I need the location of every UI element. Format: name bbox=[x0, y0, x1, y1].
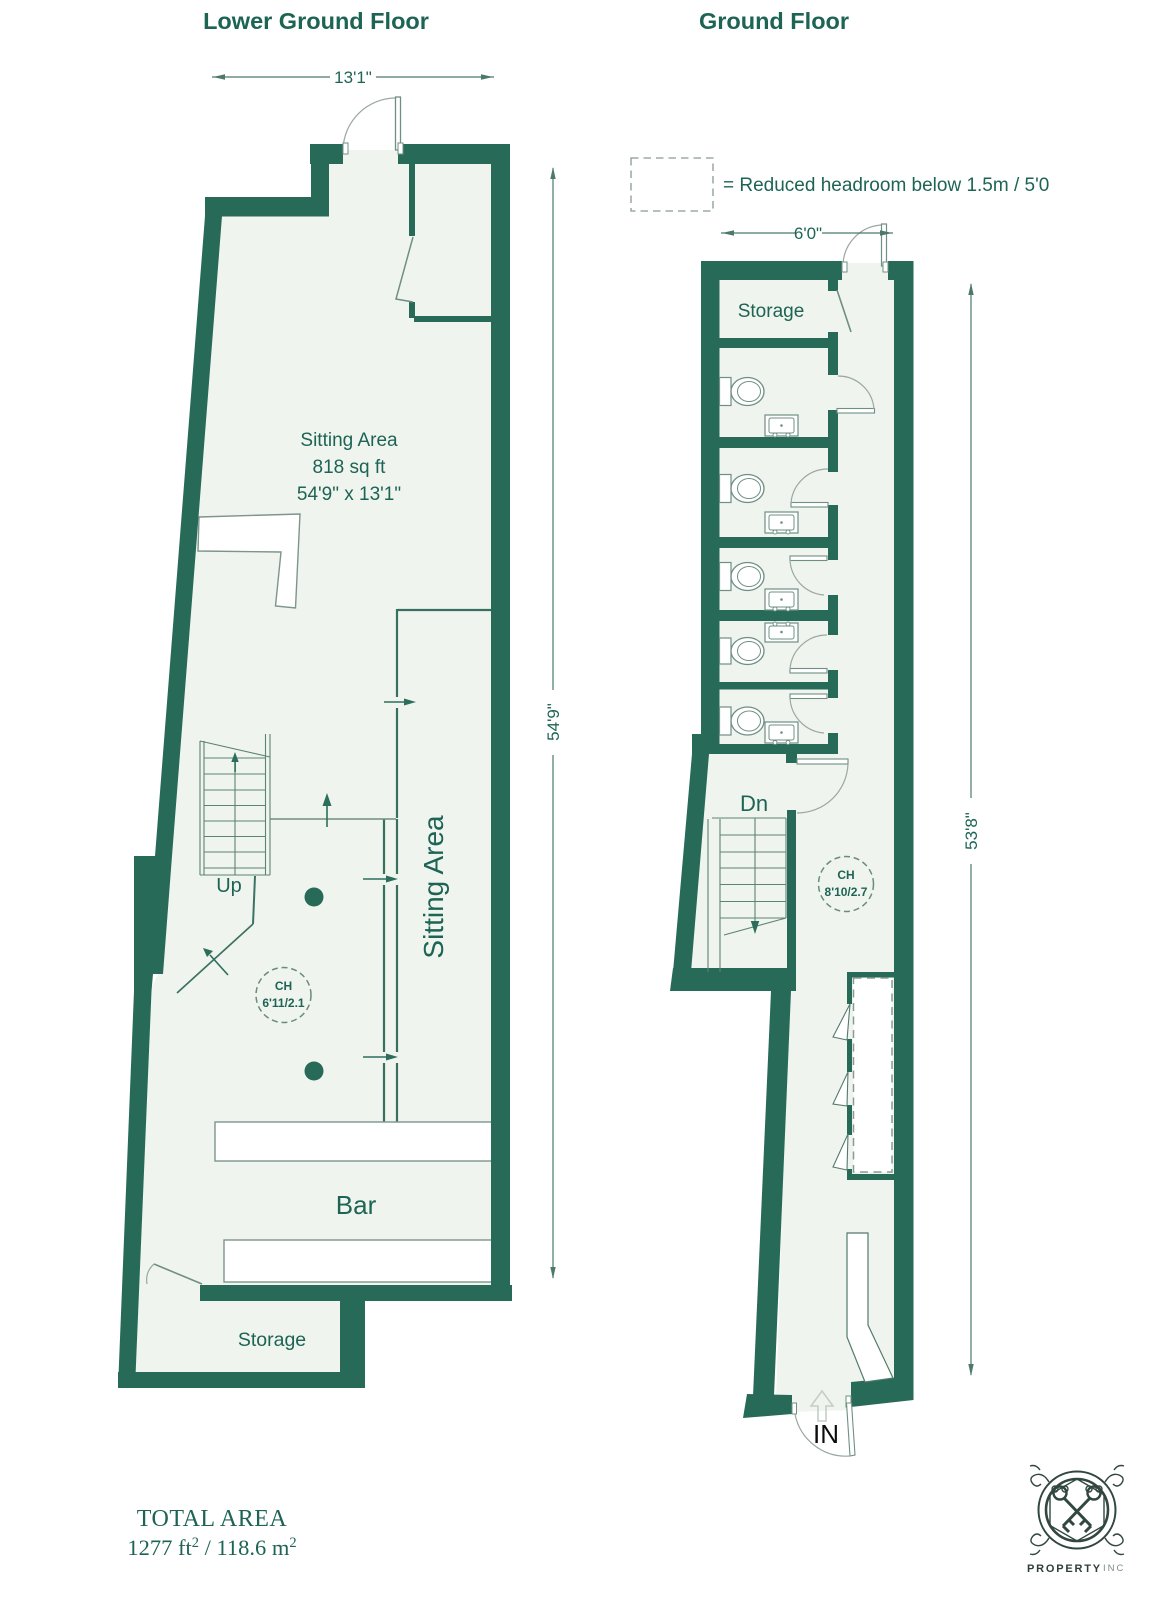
svg-text:Sitting Area: Sitting Area bbox=[418, 815, 449, 959]
svg-text:TOTAL AREA: TOTAL AREA bbox=[137, 1506, 288, 1532]
svg-text:54'9" x 13'1": 54'9" x 13'1" bbox=[297, 484, 401, 505]
svg-text:6'0": 6'0" bbox=[794, 224, 822, 243]
svg-text:Lower Ground Floor: Lower Ground Floor bbox=[203, 8, 429, 34]
svg-text:1277 ft2 / 118.6 m2: 1277 ft2 / 118.6 m2 bbox=[127, 1535, 296, 1560]
svg-text:6'11/2.1: 6'11/2.1 bbox=[262, 996, 305, 1010]
svg-text:CH: CH bbox=[275, 979, 292, 993]
svg-text:Storage: Storage bbox=[738, 301, 805, 322]
svg-text:Storage: Storage bbox=[238, 1329, 306, 1351]
svg-text:Ground Floor: Ground Floor bbox=[699, 8, 849, 34]
svg-text:54'9": 54'9" bbox=[544, 703, 563, 741]
svg-text:CH: CH bbox=[837, 868, 854, 882]
svg-text:53'8": 53'8" bbox=[962, 812, 981, 850]
svg-text:818 sq ft: 818 sq ft bbox=[313, 457, 387, 478]
svg-text:8'10/2.7: 8'10/2.7 bbox=[825, 885, 868, 899]
svg-text:13'1": 13'1" bbox=[334, 68, 372, 87]
svg-text:Sitting Area: Sitting Area bbox=[300, 430, 398, 451]
svg-text:PROPERTY: PROPERTY bbox=[1027, 1563, 1102, 1575]
svg-text:Up: Up bbox=[216, 875, 242, 897]
svg-text:= Reduced headroom below 1.5m: = Reduced headroom below 1.5m / 5'0 bbox=[723, 175, 1049, 196]
svg-text:Bar: Bar bbox=[336, 1190, 377, 1220]
svg-text:Dn: Dn bbox=[740, 791, 768, 816]
svg-text:IN: IN bbox=[813, 1419, 839, 1449]
svg-text:INC: INC bbox=[1103, 1563, 1125, 1574]
